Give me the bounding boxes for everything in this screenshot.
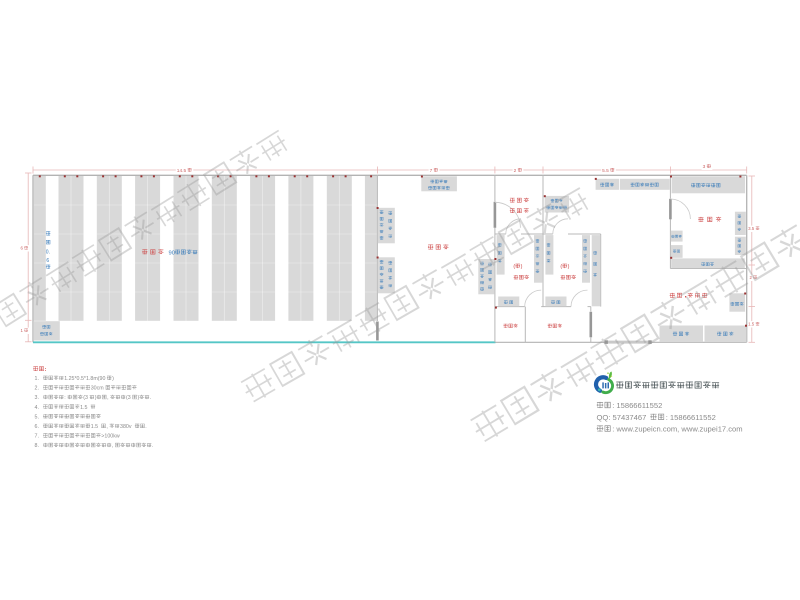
svg-text:): ) — [568, 264, 570, 270]
svg-text:5.: 5. — [35, 414, 39, 420]
svg-text:(3: (3 — [83, 395, 88, 401]
svg-text:90: 90 — [169, 250, 175, 256]
svg-text:.: . — [145, 424, 146, 430]
svg-text:>100kw: >100kw — [101, 434, 120, 440]
svg-text:,: , — [106, 424, 107, 430]
svg-text:): ) — [112, 376, 114, 382]
svg-text:,: , — [107, 395, 108, 401]
svg-text:14.5: 14.5 — [177, 168, 187, 174]
svg-text:7.: 7. — [35, 434, 39, 440]
svg-text:2: 2 — [514, 168, 517, 174]
svg-text:1.5: 1.5 — [91, 424, 98, 430]
svg-text:2.: 2. — [35, 386, 39, 392]
svg-text:4.: 4. — [35, 405, 39, 411]
svg-text:): ) — [521, 264, 523, 270]
svg-text:8.: 8. — [35, 443, 39, 449]
svg-text:3.: 3. — [35, 395, 39, 401]
svg-text:1.25*0.5*1.8m(90: 1.25*0.5*1.8m(90 — [64, 376, 105, 382]
svg-text:1.5: 1.5 — [80, 405, 87, 411]
svg-text:7: 7 — [430, 168, 433, 174]
svg-text:5.5: 5.5 — [602, 168, 609, 174]
svg-text:380v: 380v — [120, 424, 132, 430]
svg-text:: 15866611552: : 15866611552 — [612, 401, 662, 410]
svg-text:: 15866611552: : 15866611552 — [666, 413, 716, 422]
svg-text::: : — [64, 395, 65, 401]
svg-text:30cm: 30cm — [91, 386, 105, 392]
svg-text:.: . — [152, 443, 153, 449]
svg-text:1.: 1. — [35, 376, 39, 382]
svg-text::: : — [45, 367, 47, 373]
svg-text:0.: 0. — [46, 250, 50, 256]
svg-text:,: , — [112, 443, 113, 449]
svg-text:(: ( — [513, 264, 515, 270]
svg-text:): ) — [95, 395, 97, 401]
svg-text:QQ: 57437467: QQ: 57437467 — [597, 413, 647, 422]
svg-text:3.5: 3.5 — [748, 226, 755, 231]
svg-text:3: 3 — [703, 164, 706, 170]
svg-text:: www.zupeicn.com, www.zupei17: : www.zupeicn.com, www.zupei17.com — [612, 425, 742, 434]
svg-text:(: ( — [560, 264, 562, 270]
svg-text:6.: 6. — [35, 424, 39, 430]
svg-text:): ) — [138, 395, 140, 401]
svg-text:1.5: 1.5 — [748, 322, 755, 327]
svg-text:6: 6 — [46, 258, 49, 264]
svg-text:.: . — [150, 395, 151, 401]
svg-text:(3: (3 — [126, 395, 131, 401]
